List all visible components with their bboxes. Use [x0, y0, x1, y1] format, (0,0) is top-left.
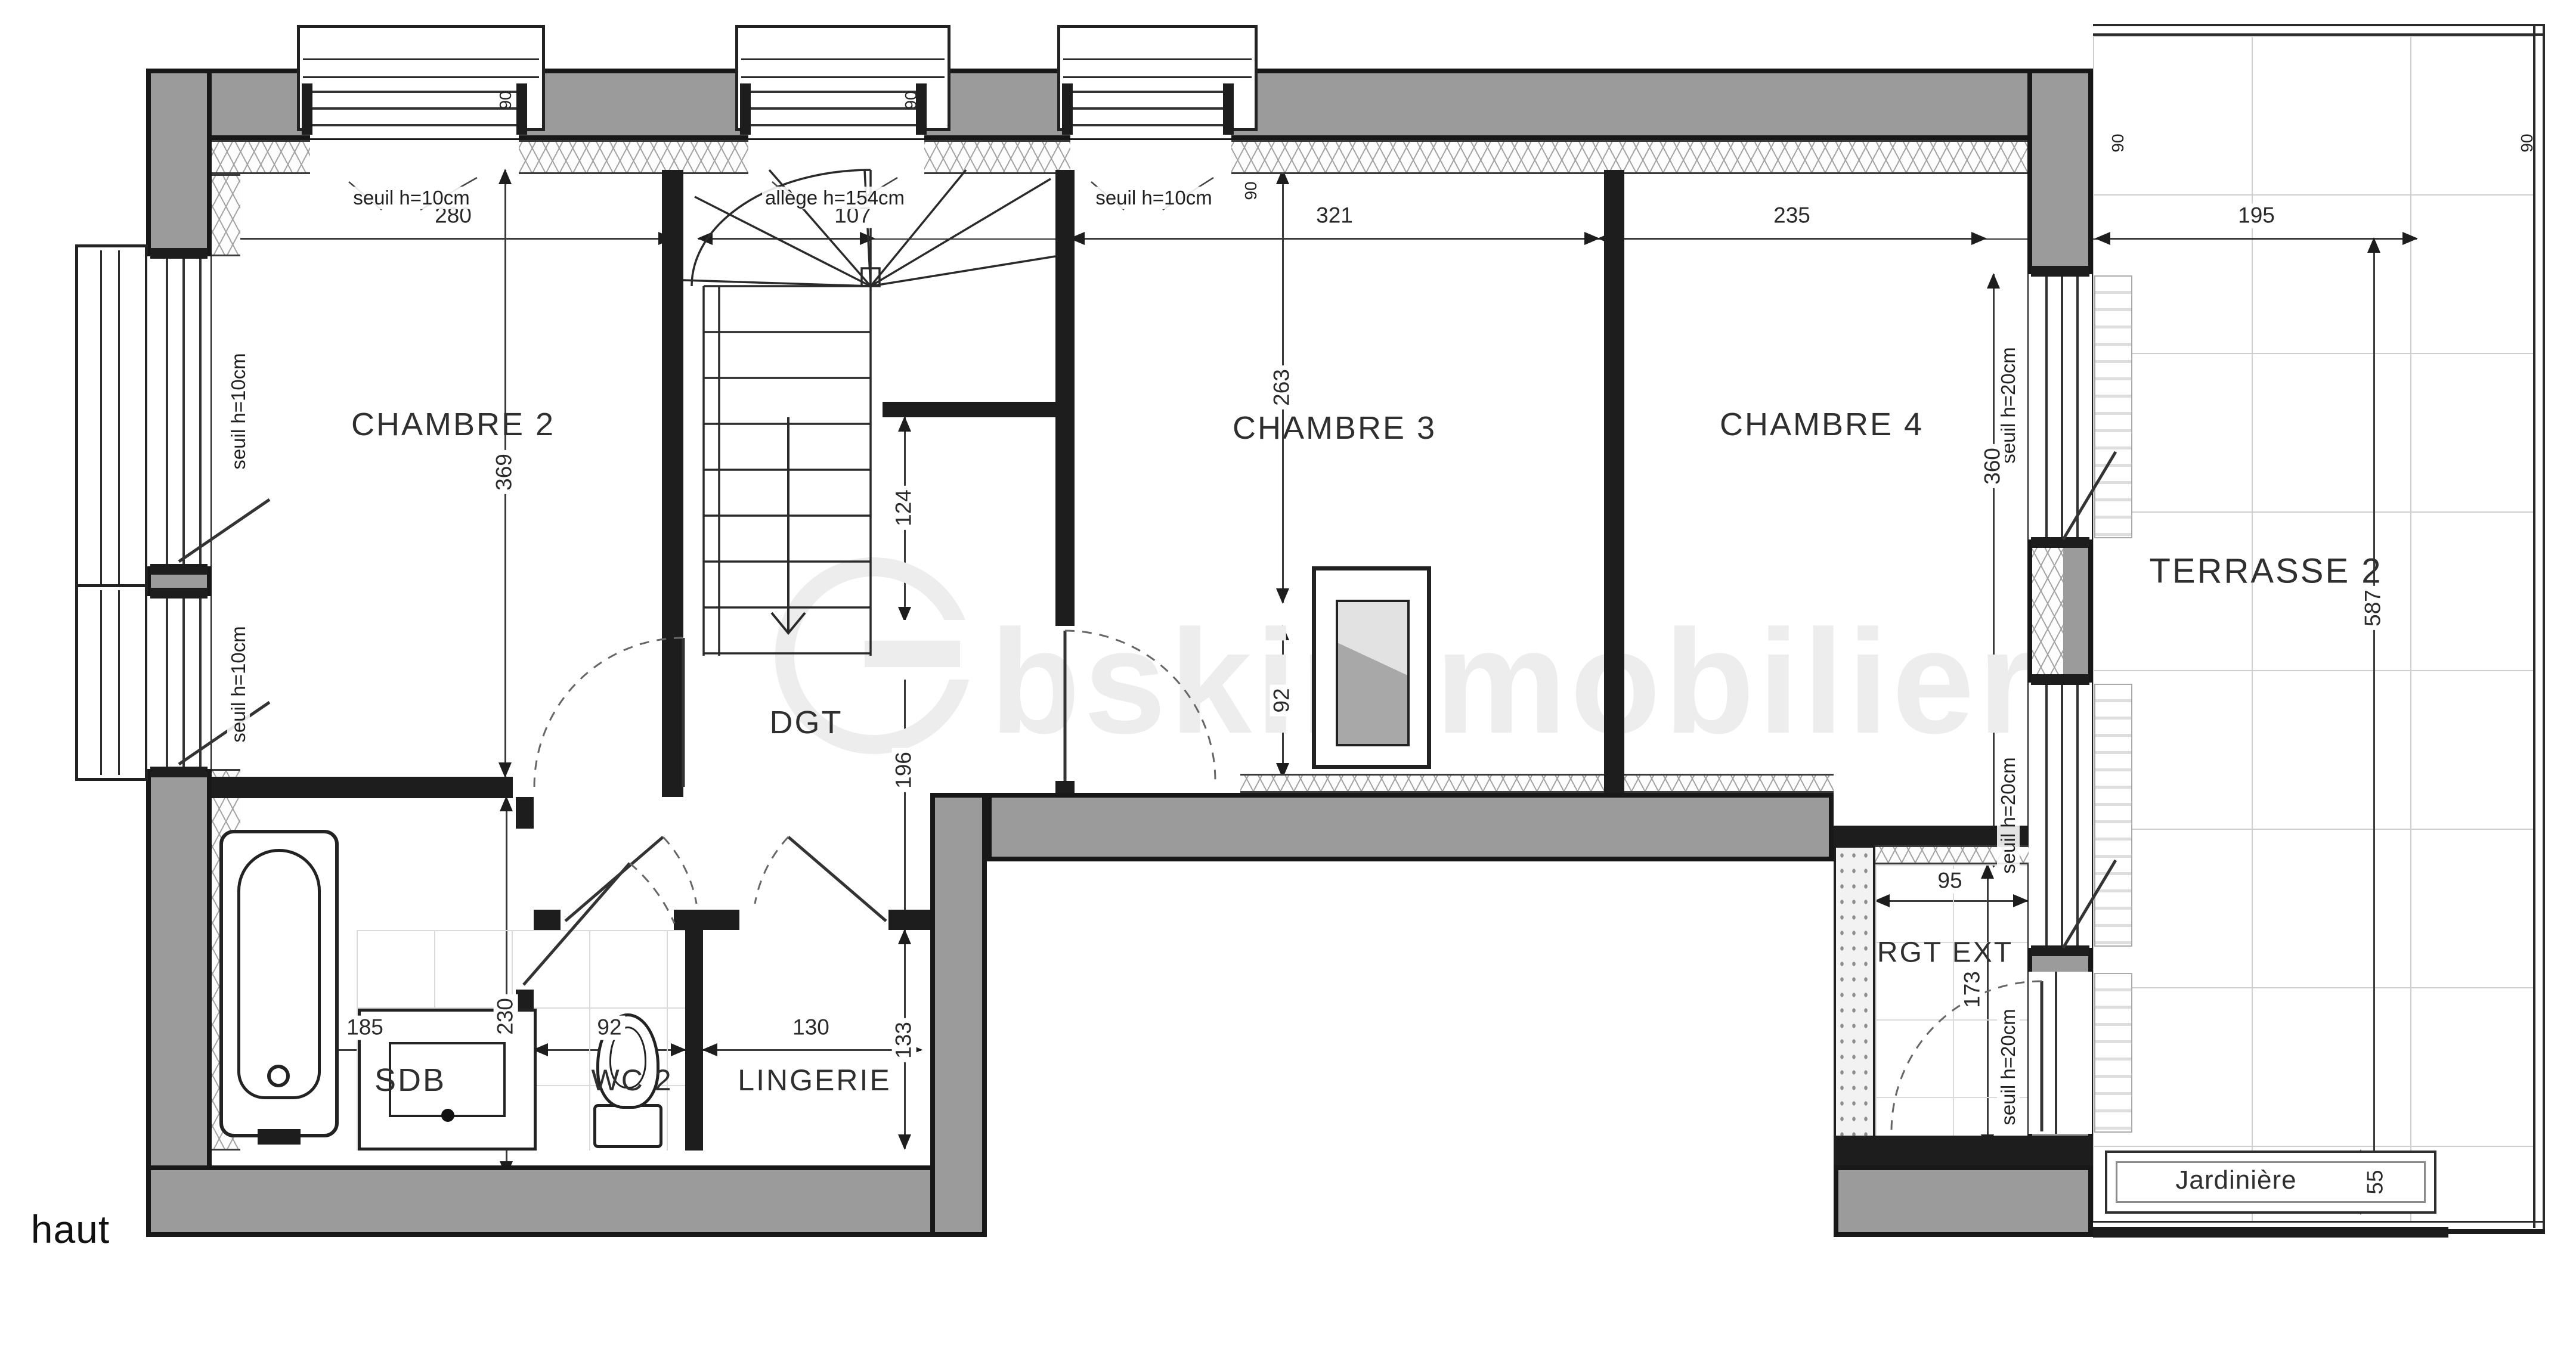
dim-195: 195: [2234, 204, 2278, 228]
door-leaves: [179, 452, 2116, 1131]
floor-direction-label: haut: [31, 1207, 110, 1252]
door-leaf-lingerie: [788, 837, 886, 921]
rgt-ext-door-label: seuil h=20cm: [1997, 1006, 2020, 1128]
dim-173: 173: [1961, 968, 1985, 1012]
door-arc-lingerie: [755, 837, 788, 904]
terrace-width-mark-right: 90: [2518, 134, 2537, 152]
room-label-chambre2: CHAMBRE 2: [351, 406, 555, 443]
dim-321: 321: [1312, 204, 1357, 228]
dim-55: 55: [2364, 1166, 2388, 1198]
dim-587: 587: [2361, 586, 2386, 630]
slider-panel-open-2: [2063, 860, 2116, 948]
room-label-chambre3: CHAMBRE 3: [1233, 410, 1436, 446]
door-arc-sdb: [630, 863, 674, 923]
room-label-lingerie: LINGERIE: [738, 1063, 891, 1097]
dim-92-wc: 92: [593, 1016, 625, 1040]
room-label-dgt: DGT: [770, 704, 843, 741]
dim-92-door: 92: [1270, 684, 1295, 716]
dim-124: 124: [892, 486, 917, 530]
window-width-mark: 90: [1241, 181, 1261, 200]
dim-263: 263: [1270, 365, 1295, 410]
casement-leaf-left-2: [179, 702, 270, 764]
room-label-terrasse2: TERRASSE 2: [2150, 551, 2383, 591]
stairs-direction-arrow-icon: [772, 417, 805, 633]
window-top-1-label: seuil h=10cm: [350, 187, 472, 209]
dim-360: 360: [1981, 444, 2005, 488]
window-left-2-label: seuil h=10cm: [227, 623, 250, 745]
casement-leaf-left-1: [179, 500, 270, 562]
room-label-chambre4: CHAMBRE 4: [1720, 406, 1924, 443]
dim-185: 185: [343, 1016, 387, 1040]
door-arc-wc2: [663, 837, 696, 904]
door-leaf-wc2: [565, 837, 663, 921]
slider-2-label: seuil h=20cm: [1997, 754, 2020, 876]
floor-plan-page: { "plan": { "floor_label": "haut", "wate…: [0, 0, 2576, 1352]
window-top-3-label: seuil h=10cm: [1092, 187, 1215, 209]
room-label-sdb: SDB: [374, 1062, 446, 1099]
room-label-rgt-ext: RGT EXT: [1877, 937, 2013, 969]
dim-133: 133: [892, 1018, 917, 1062]
room-label-wc2: WC 2: [592, 1063, 673, 1097]
window-top-2-label: allège h=154cm: [762, 187, 908, 209]
window-width-mark: 90: [496, 91, 515, 109]
window-left-1-label: seuil h=10cm: [227, 350, 250, 472]
slider-panel-open-1: [2063, 452, 2116, 539]
dim-369: 369: [493, 450, 517, 494]
dim-235: 235: [1770, 204, 1814, 228]
dim-230: 230: [494, 994, 518, 1038]
dim-196: 196: [892, 748, 917, 792]
room-label-jardiniere: Jardinière: [2175, 1165, 2296, 1195]
door-arc-chambre3: [1065, 631, 1215, 781]
door-leaf-sdb: [524, 863, 630, 985]
door-arc-chambre2: [534, 638, 683, 787]
window-width-mark: 90: [902, 91, 921, 109]
dim-95: 95: [1934, 869, 1965, 894]
staircase-icon: [683, 170, 1055, 656]
terrace-width-mark-left: 90: [2109, 134, 2128, 152]
dim-130: 130: [789, 1016, 833, 1040]
